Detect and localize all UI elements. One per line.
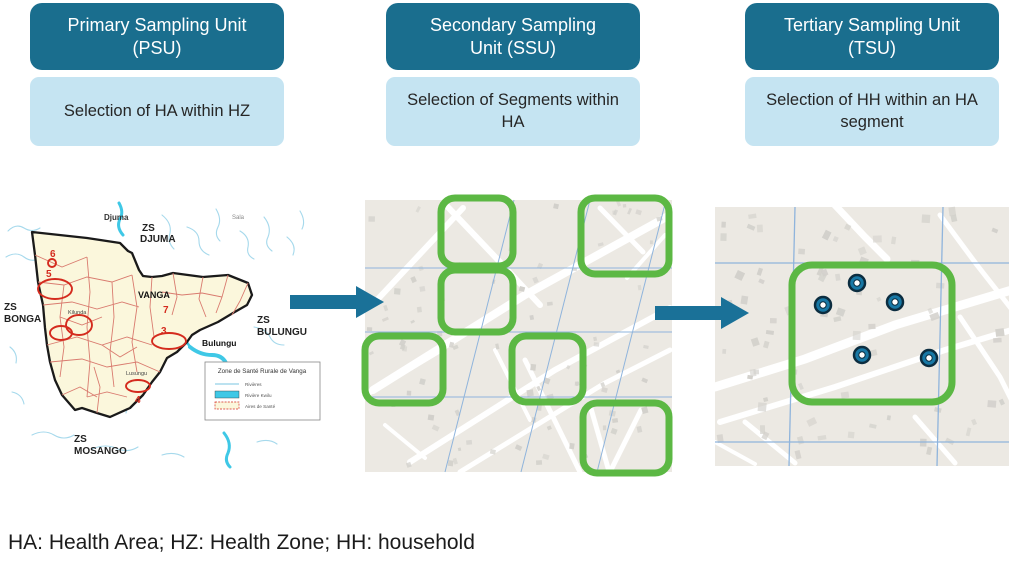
tsu-header: Tertiary Sampling Unit (TSU) [745,3,999,70]
map-label: ZS [4,302,17,313]
legend-item-label: Rivière Kwilu [245,393,272,398]
map-label: ZS [257,315,270,326]
map-label: Sala [232,215,245,221]
household-marker [921,350,937,366]
health-area-swatch [215,402,239,409]
ssu-title: Secondary Sampling Unit (SSU) [420,14,606,59]
map-label: ZS [142,223,155,234]
map-label: Bulungu [202,338,236,348]
psu-title: Primary Sampling Unit (PSU) [64,14,250,59]
psu-subtitle: Selection of HA within HZ [64,101,250,122]
ssu-subtitle-box: Selection of Segments within HA [386,77,640,146]
selected-area-number: 3 [161,326,167,337]
tsu-subtitle-box: Selection of HH within an HA segment [745,77,999,146]
legend-item-label: Rivières [245,382,262,387]
map-legend: Zone de Santé Rurale de VangaRivièresRiv… [205,362,320,420]
selected-area-number: 5 [46,269,52,280]
map-label: Lusungu [126,371,147,377]
ssu-subtitle: Selection of Segments within HA [398,90,628,132]
household-marker [815,297,831,313]
psu-header: Primary Sampling Unit (PSU) [30,3,284,70]
ssu-header: Secondary Sampling Unit (SSU) [386,3,640,70]
legend-title: Zone de Santé Rurale de Vanga [218,368,307,375]
map-label: ZS [74,434,87,445]
river-kwilu-swatch [215,391,239,398]
household-marker [887,294,903,310]
map-label: BULUNGU [257,327,307,338]
map-label: VANGA [138,290,170,300]
legend-item-label: Aires de Santé [245,404,276,409]
selected-area-number: 7 [163,305,169,316]
ssu-map-segments [365,200,672,472]
three-stage-sampling-diagram: Primary Sampling Unit (PSU) Secondary Sa… [0,0,1024,564]
household-marker [849,275,865,291]
tsu-subtitle: Selection of HH within an HA segment [757,90,987,132]
map-label: MOSANGO [74,446,127,457]
map-label: Djuma [104,213,129,222]
psu-map-health-zone: DjumaZSDJUMASalaZSBONGAVANGAZSBULUNGUBul… [2,197,332,472]
tsu-title: Tertiary Sampling Unit (TSU) [779,14,965,59]
selected-area-number: 4 [135,395,141,406]
household-marker [854,347,870,363]
selected-area-number: 6 [50,249,56,260]
arrow-ssu-to-tsu-icon [655,296,750,330]
tsu-map-households [715,207,1009,466]
map-label: DJUMA [140,234,176,245]
abbreviation-note: HA: Health Area; HZ: Health Zone; HH: ho… [8,531,475,555]
map-label: BONGA [4,314,41,325]
arrow-psu-to-ssu-icon [290,285,385,319]
psu-subtitle-box: Selection of HA within HZ [30,77,284,146]
